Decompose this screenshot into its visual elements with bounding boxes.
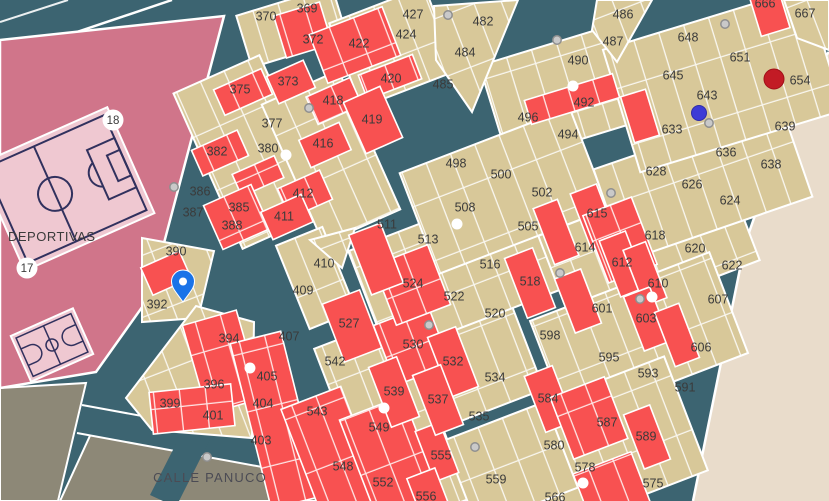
parcel-label-620[interactable]: 620 (685, 242, 706, 256)
parcel-label-485[interactable]: 485 (433, 78, 454, 92)
parcel-label-405[interactable]: 405 (257, 370, 278, 384)
parcel-label-535[interactable]: 535 (469, 410, 490, 424)
parcel-label-484[interactable]: 484 (455, 46, 476, 60)
parcel-label-575[interactable]: 575 (643, 477, 664, 491)
parcel-label-505[interactable]: 505 (518, 220, 539, 234)
street-node-white (379, 403, 390, 414)
parcel-label-407[interactable]: 407 (279, 330, 300, 344)
parcel-label-482[interactable]: 482 (473, 15, 494, 29)
parcel-label-610[interactable]: 610 (648, 277, 669, 291)
parcel-label-578[interactable]: 578 (575, 461, 596, 475)
parcel-label-422[interactable]: 422 (349, 37, 370, 51)
parcel-label-486[interactable]: 486 (613, 8, 634, 22)
parcel-label-399[interactable]: 399 (160, 397, 181, 411)
parcel-label-404[interactable]: 404 (253, 397, 274, 411)
parcel-label-511[interactable]: 511 (377, 218, 397, 232)
street-node-white (647, 292, 658, 303)
parcel-label-667[interactable]: 667 (795, 7, 816, 21)
map-canvas[interactable]: 3693703724274244224203753733773803823863… (0, 0, 829, 501)
parcel-label-387[interactable]: 387 (183, 206, 204, 220)
parcel-label-559[interactable]: 559 (486, 473, 507, 487)
parcel-label-601[interactable]: 601 (592, 302, 613, 316)
parcel-label-522[interactable]: 522 (444, 290, 465, 304)
parcel-label-416[interactable]: 416 (313, 137, 334, 151)
street-node-gray (444, 11, 452, 19)
parcel-label-603[interactable]: 603 (636, 312, 657, 326)
parcel-label-612[interactable]: 612 (612, 256, 633, 270)
parcel-label-377[interactable]: 377 (262, 117, 283, 131)
parcel-label-392[interactable]: 392 (147, 298, 168, 312)
parcel-label-614[interactable]: 614 (575, 241, 596, 255)
parcel-label-411[interactable]: 411 (274, 210, 294, 224)
parcel-label-622[interactable]: 622 (722, 259, 743, 273)
parcel-label-651[interactable]: 651 (730, 51, 751, 65)
parcel-label-508[interactable]: 508 (455, 201, 476, 215)
parcel-label-520[interactable]: 520 (485, 307, 506, 321)
parcel-label-494[interactable]: 494 (558, 128, 579, 142)
parcel-label-513[interactable]: 513 (418, 233, 439, 247)
street-node-gray (553, 36, 561, 44)
area-name-label: DEPORTIVAS (8, 229, 96, 244)
parcel-label-580[interactable]: 580 (544, 439, 565, 453)
parcel-label-615[interactable]: 615 (587, 207, 608, 221)
street-node-gray (721, 20, 729, 28)
parcel-label-490[interactable]: 490 (568, 54, 589, 68)
parcel-label-566[interactable]: 566 (545, 491, 566, 501)
parcel-label-666[interactable]: 666 (755, 0, 776, 11)
parcel-label-534[interactable]: 534 (485, 371, 506, 385)
parcel-label-410[interactable]: 410 (314, 257, 335, 271)
parcel-label-487[interactable]: 487 (603, 35, 624, 49)
parcel-label-584[interactable]: 584 (538, 392, 559, 406)
parcel-label-424[interactable]: 424 (396, 28, 417, 42)
parcel-label-636[interactable]: 636 (716, 146, 737, 160)
parcel-label-496[interactable]: 496 (518, 111, 539, 125)
parcel-label-591[interactable]: 591 (675, 381, 696, 395)
street-node-gray (636, 295, 644, 303)
parcel-label-595[interactable]: 595 (599, 351, 620, 365)
parcel-label-394[interactable]: 394 (219, 332, 240, 346)
parcel-label-626[interactable]: 626 (682, 178, 703, 192)
parcel-label-396[interactable]: 396 (204, 378, 225, 392)
parcel-label-598[interactable]: 598 (540, 329, 561, 343)
parcel-label-420[interactable]: 420 (381, 72, 402, 86)
parcel-label-518[interactable]: 518 (520, 275, 541, 289)
parcel-label-524[interactable]: 524 (403, 277, 424, 291)
parcel-label-638[interactable]: 638 (761, 158, 782, 172)
parcel-label-593[interactable]: 593 (638, 367, 659, 381)
parcel-label-409[interactable]: 409 (293, 284, 314, 298)
street-node-gray (556, 269, 564, 277)
parcel-label-643[interactable]: 643 (697, 89, 718, 103)
street-node-gray (305, 104, 313, 112)
parcel-label-552[interactable]: 552 (373, 476, 394, 490)
parcel-label-492[interactable]: 492 (574, 96, 595, 110)
parcel-label-606[interactable]: 606 (691, 341, 712, 355)
parcel-label-401[interactable]: 401 (203, 409, 224, 423)
parcel-label-372[interactable]: 372 (303, 33, 324, 47)
parcel-label-648[interactable]: 648 (678, 31, 699, 45)
parcel-label-527[interactable]: 527 (339, 317, 360, 331)
parcel-label-369[interactable]: 369 (297, 2, 318, 16)
street-node-gray (203, 453, 211, 461)
parcel-label-375[interactable]: 375 (230, 83, 251, 97)
street-node-white (245, 363, 256, 374)
parcel-label-607[interactable]: 607 (708, 293, 729, 307)
parcel-label-516[interactable]: 516 (480, 258, 501, 272)
parcel-label-385[interactable]: 385 (229, 201, 250, 215)
parcel-label-542[interactable]: 542 (325, 355, 346, 369)
parcel-label-537[interactable]: 537 (428, 393, 449, 407)
street-node-white (578, 478, 589, 489)
street-node-white (452, 219, 463, 230)
parcel-label-556[interactable]: 556 (416, 490, 437, 501)
street-node-white (281, 150, 292, 161)
parcel-label-370[interactable]: 370 (256, 10, 277, 24)
street-name-label: CALLE PANUCO (153, 470, 267, 485)
parcel-label-548[interactable]: 548 (333, 460, 354, 474)
parcel-label-412[interactable]: 412 (293, 187, 314, 201)
parcel-label-380[interactable]: 380 (258, 142, 279, 156)
parcel-label-418[interactable]: 418 (323, 94, 344, 108)
parcel-label-500[interactable]: 500 (491, 168, 512, 182)
parcel-label-427[interactable]: 427 (403, 8, 424, 22)
parcel-label-633[interactable]: 633 (662, 123, 683, 137)
parcel-label-373[interactable]: 373 (278, 75, 299, 89)
parcel-label-390[interactable]: 390 (166, 245, 187, 259)
parcel-label-628[interactable]: 628 (646, 165, 667, 179)
street-node-gray (705, 119, 713, 127)
parcel-label-530[interactable]: 530 (403, 338, 424, 352)
parcel-label-624[interactable]: 624 (720, 194, 741, 208)
parcel-label-645[interactable]: 645 (663, 69, 684, 83)
street-node-white (568, 81, 579, 92)
parcel-label-587[interactable]: 587 (597, 416, 618, 430)
block-number-label: 18 (107, 115, 120, 127)
red-point-marker[interactable] (764, 69, 784, 89)
parcel-label-502[interactable]: 502 (532, 186, 553, 200)
street-node-gray (471, 443, 479, 451)
street-node-gray (170, 183, 178, 191)
parcel-label-498[interactable]: 498 (446, 157, 467, 171)
parcel-label-403[interactable]: 403 (251, 434, 272, 448)
parcel-label-419[interactable]: 419 (362, 113, 383, 127)
parcel-label-555[interactable]: 555 (431, 449, 452, 463)
map-viewport[interactable]: 3693703724274244224203753733773803823863… (0, 0, 829, 501)
street-node-gray (425, 321, 433, 329)
parcel-label-388[interactable]: 388 (222, 219, 243, 233)
block-number-label: 17 (21, 263, 34, 275)
parcel-label-543[interactable]: 543 (307, 405, 328, 419)
parcel-label-532[interactable]: 532 (443, 355, 464, 369)
parcel-label-386[interactable]: 386 (190, 185, 211, 199)
blue-point-marker[interactable] (692, 106, 707, 121)
street-node-gray (607, 189, 615, 197)
parcel-label-549[interactable]: 549 (369, 421, 390, 435)
parcel-label-382[interactable]: 382 (207, 145, 228, 159)
parcel-label-639[interactable]: 639 (775, 120, 796, 134)
parcel-label-618[interactable]: 618 (645, 229, 666, 243)
parcel-label-589[interactable]: 589 (636, 430, 657, 444)
parcel-label-539[interactable]: 539 (384, 385, 405, 399)
parcel-label-654[interactable]: 654 (790, 74, 811, 88)
